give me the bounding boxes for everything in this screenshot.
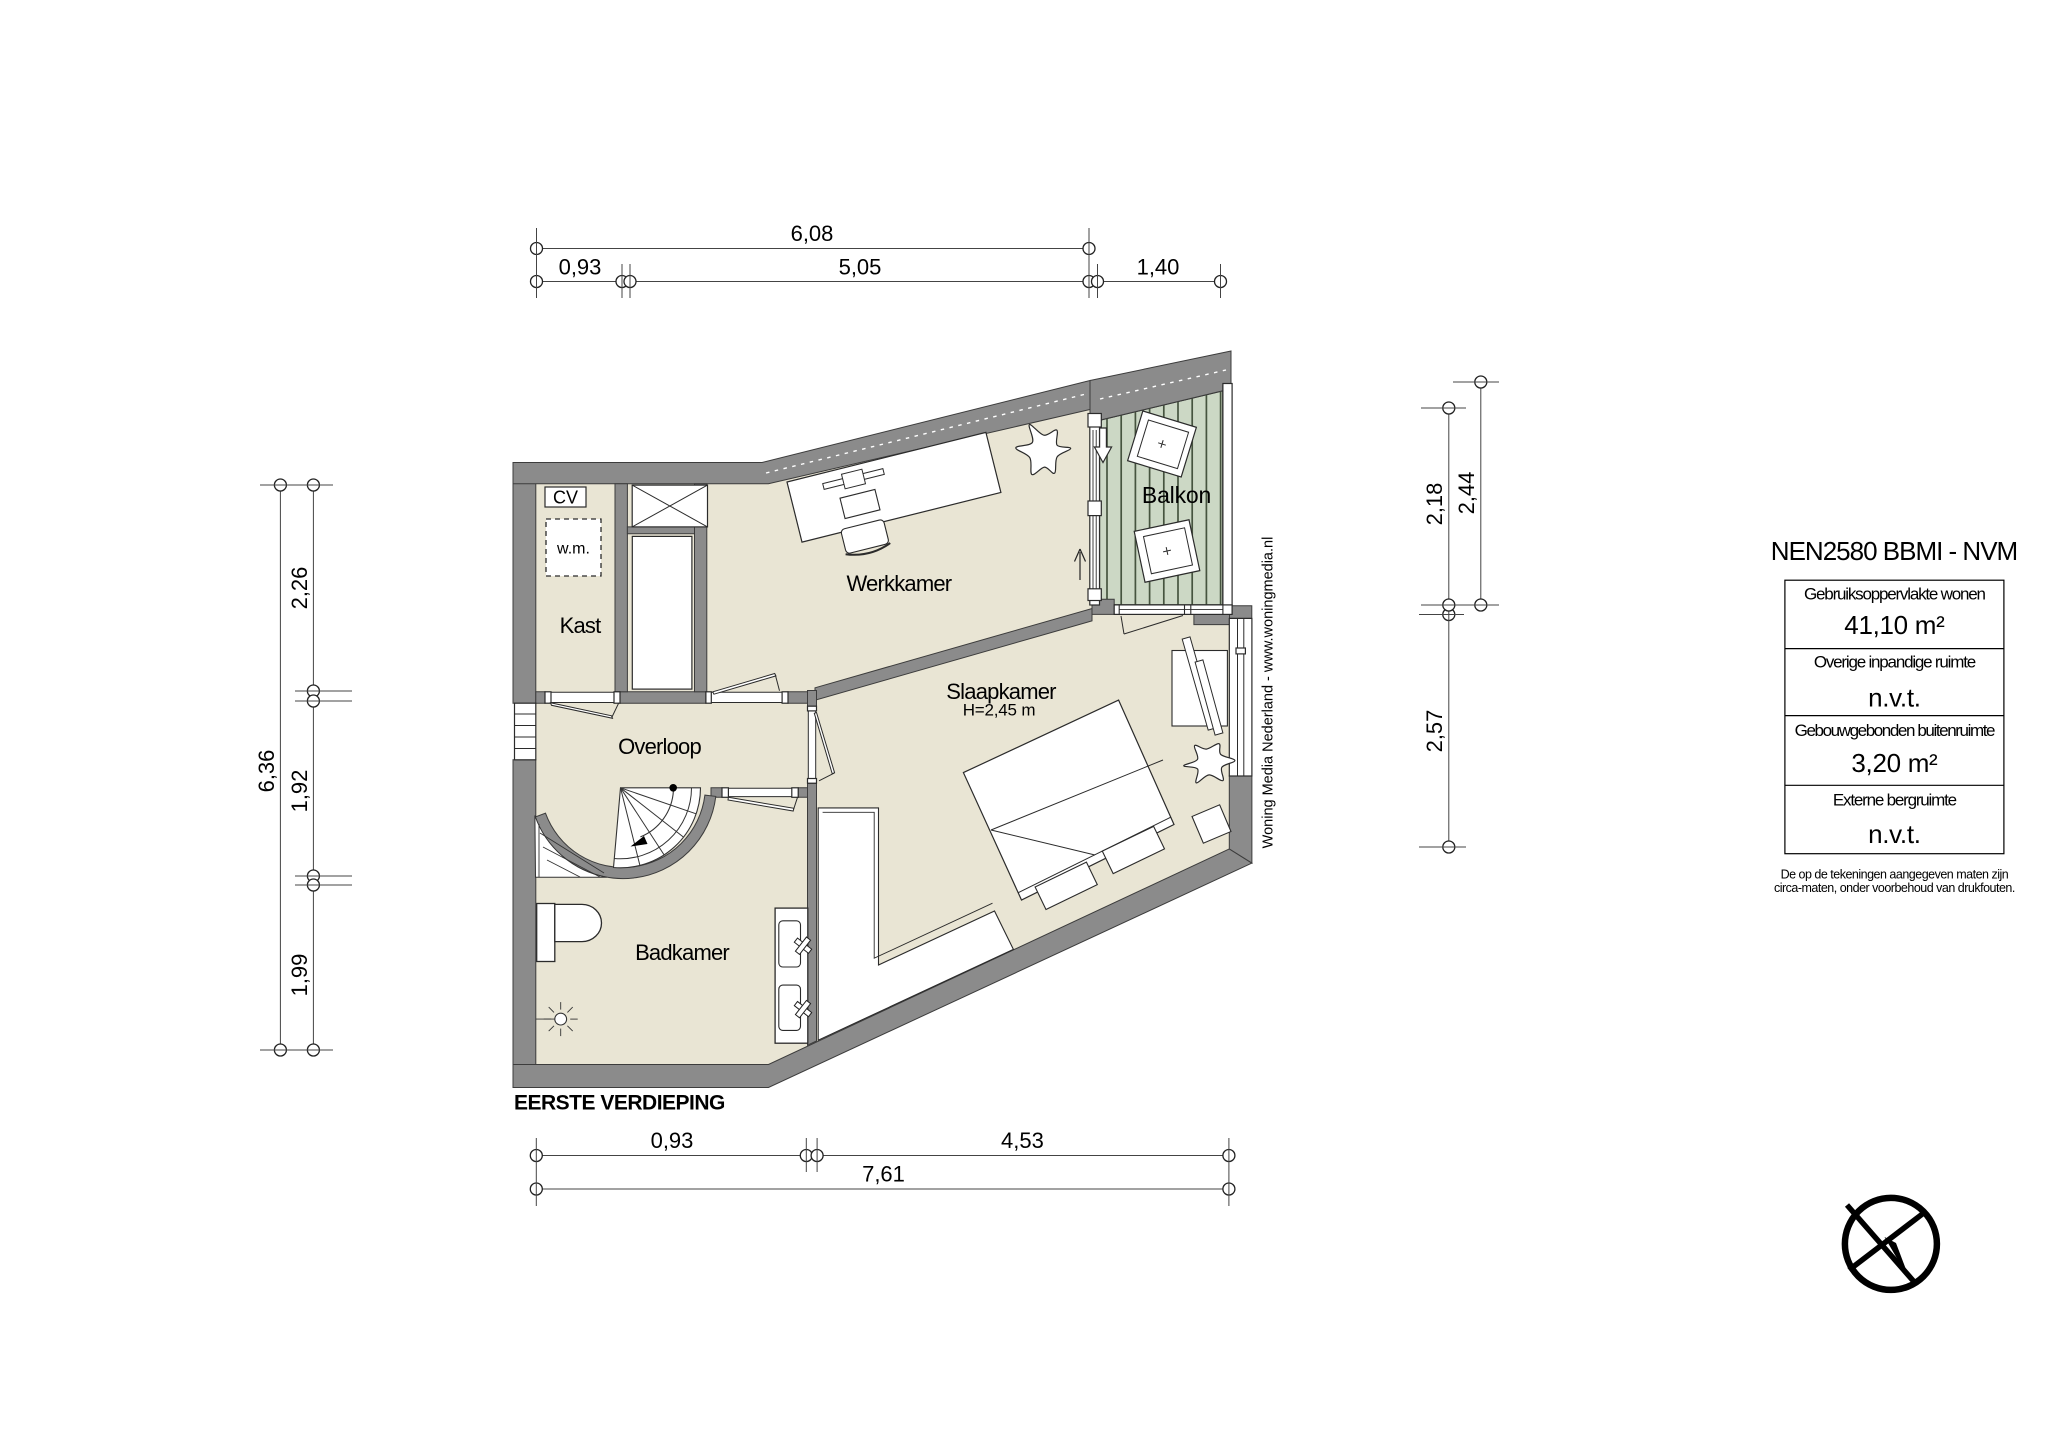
svg-text:H=2,45 m: H=2,45 m	[963, 701, 1036, 720]
svg-text:circa-maten, onder voorbehoud: circa-maten, onder voorbehoud van drukfo…	[1774, 881, 2015, 895]
svg-text:Werkkamer: Werkkamer	[846, 571, 951, 596]
svg-text:3,20 m²: 3,20 m²	[1851, 748, 1938, 778]
svg-text:6,08: 6,08	[791, 221, 834, 246]
svg-text:Overloop: Overloop	[618, 734, 701, 759]
svg-text:2,57: 2,57	[1422, 710, 1447, 753]
svg-text:1,99: 1,99	[287, 954, 312, 997]
svg-text:Externe bergruimte: Externe bergruimte	[1833, 791, 1957, 810]
svg-text:Gebruiksoppervlakte wonen: Gebruiksoppervlakte wonen	[1804, 585, 1985, 604]
svg-text:2,44: 2,44	[1454, 472, 1479, 515]
svg-text:0,93: 0,93	[651, 1128, 694, 1153]
svg-text:6,36: 6,36	[254, 750, 279, 793]
svg-text:0,93: 0,93	[559, 255, 602, 280]
svg-text:Gebouwgebonden buitenruimte: Gebouwgebonden buitenruimte	[1795, 721, 1995, 740]
svg-text:De op de tekeningen aangegeven: De op de tekeningen aangegeven maten zij…	[1781, 868, 2009, 882]
svg-text:n.v.t.: n.v.t.	[1868, 819, 1921, 849]
svg-text:41,10 m²: 41,10 m²	[1844, 610, 1945, 640]
svg-text:Balkon: Balkon	[1142, 482, 1211, 508]
svg-text:n.v.t.: n.v.t.	[1868, 683, 1921, 713]
svg-text:7,61: 7,61	[862, 1162, 905, 1187]
svg-text:w.m.: w.m.	[556, 541, 590, 558]
svg-text:NEN2580 BBMI - NVM: NEN2580 BBMI - NVM	[1771, 536, 2017, 566]
svg-text:1,92: 1,92	[287, 770, 312, 813]
svg-text:4,53: 4,53	[1001, 1128, 1044, 1153]
svg-text:2,26: 2,26	[287, 567, 312, 610]
svg-text:Kast: Kast	[560, 613, 602, 638]
svg-text:5,05: 5,05	[839, 255, 882, 280]
svg-text:CV: CV	[553, 488, 578, 508]
svg-text:2,18: 2,18	[1422, 483, 1447, 526]
svg-text:1,40: 1,40	[1137, 255, 1180, 280]
svg-text:EERSTE VERDIEPING: EERSTE VERDIEPING	[514, 1092, 725, 1115]
svg-text:Overige inpandige ruimte: Overige inpandige ruimte	[1814, 653, 1976, 672]
svg-text:Woning Media Nederland - www.w: Woning Media Nederland - www.woningmedia…	[1261, 537, 1277, 849]
svg-text:Badkamer: Badkamer	[635, 940, 729, 965]
